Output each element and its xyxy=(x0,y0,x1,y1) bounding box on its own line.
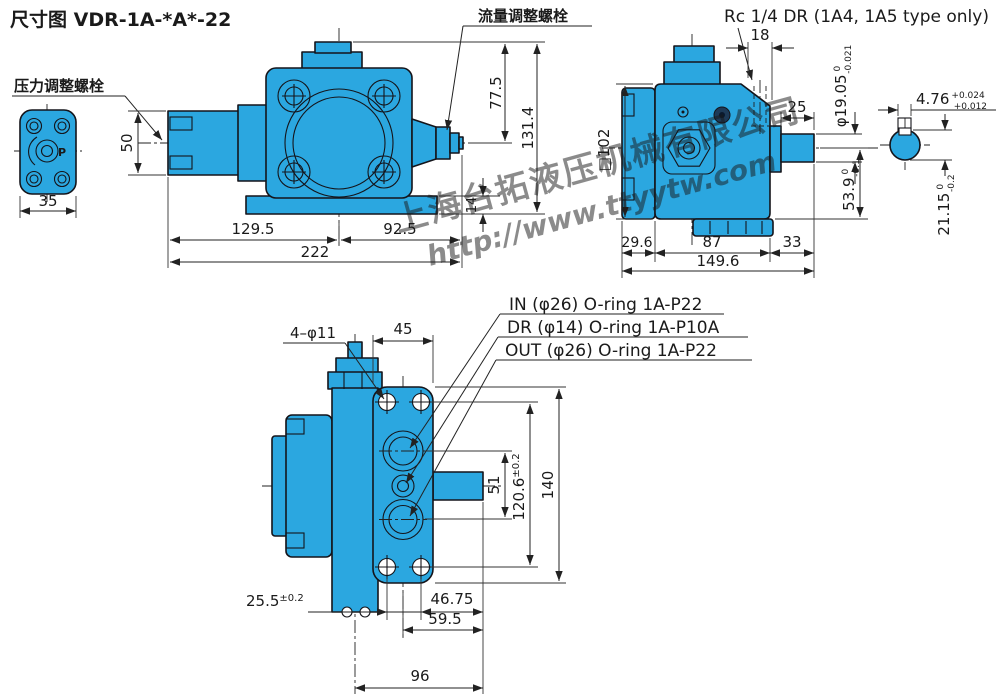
dim-side-bottom-main: 53.9 xyxy=(840,177,858,210)
dim-bolt-span: 120.6±0.2 xyxy=(510,453,528,520)
dim-key-width: 4.76+0.024+0.012 xyxy=(916,90,987,112)
dim-bolt-holes: 4–φ11 xyxy=(290,324,336,342)
port-out-label: OUT (φ26) O-ring 1A-P22 xyxy=(505,341,717,361)
dim-front-left: 129.5 xyxy=(232,220,275,238)
dim-key-width-tol-top: +0.024 xyxy=(951,91,985,101)
port-dr-label: DR (φ14) O-ring 1A-P10A xyxy=(507,318,720,338)
dim-flange-width: 35 xyxy=(38,192,57,210)
dim-mount-right: 46.75 xyxy=(431,590,474,608)
bottom-view: IN (φ26) O-ring 1A-P22 DR (φ14) O-ring 1… xyxy=(246,295,752,694)
shaft-section-view: 4.76+0.024+0.012 21.150-0.2 xyxy=(878,90,996,236)
dim-shaft-dia-main: φ19.05 xyxy=(832,74,850,127)
dim-front-top: 77.5 xyxy=(487,76,505,109)
dim-port-span: 51 xyxy=(485,475,503,494)
pressure-adjust-label: 压力调整螺栓 xyxy=(14,77,104,95)
dim-bolt-pitch: 25.5±0.2 xyxy=(246,592,304,610)
dim-mount-total: 96 xyxy=(410,667,429,685)
dim-key-width-main: 4.76 xyxy=(916,90,949,108)
dim-side-bottom: 53.90-0.1 xyxy=(840,159,862,211)
dimension-drawing-page: 尺寸图 VDR-1A-*A*-22 流量调整螺栓 Rc 1/4 DR (1A4,… xyxy=(0,0,1000,697)
dim-side-top-offset: 18 xyxy=(750,26,769,44)
dim-side-bottom-tol-bot: -0.1 xyxy=(852,159,862,177)
dim-side-left: 29.6 xyxy=(621,235,652,251)
dim-side-mid: 87 xyxy=(702,233,721,251)
dim-bolt-pitch-main: 25.5 xyxy=(246,592,279,610)
port-flange-view: P 35 xyxy=(14,104,82,218)
dim-mount-port: 59.5 xyxy=(428,610,461,628)
dim-bolt-span-main: 120.6 xyxy=(510,478,528,521)
dim-side-total: 149.6 xyxy=(697,252,740,270)
dim-shaft-dia: φ19.050-0.021 xyxy=(832,45,854,128)
dim-key-height-tol-top: 0 xyxy=(936,184,946,190)
dim-front-height: 131.4 xyxy=(519,107,537,150)
rc-port-label: Rc 1/4 DR (1A4, 1A5 type only) xyxy=(724,7,989,27)
dim-flange-height: 140 xyxy=(539,471,557,500)
dim-bolt-span-tol: ±0.2 xyxy=(511,453,522,477)
dim-front-total: 222 xyxy=(301,243,330,261)
dim-shaft-dia-tol-top: 0 xyxy=(833,65,843,71)
page-title: 尺寸图 VDR-1A-*A*-22 xyxy=(10,8,231,31)
dim-key-height-tol-bot: -0.2 xyxy=(947,174,957,192)
dim-bolt-pitch-tol: ±0.2 xyxy=(279,593,303,604)
dim-shaft-dia-tol-bot: -0.021 xyxy=(844,45,854,74)
dim-key-width-tol-bot: +0.012 xyxy=(954,102,987,112)
watermark: 上海台拓液压机械有限公司 http://www.ttyytw.com xyxy=(390,90,805,273)
dimension-drawing: 尺寸图 VDR-1A-*A*-22 流量调整螺栓 Rc 1/4 DR (1A4,… xyxy=(0,0,1000,697)
dim-key-height: 21.150-0.2 xyxy=(935,174,957,235)
flow-adjust-label: 流量调整螺栓 xyxy=(478,7,568,25)
dim-side-bottom-tol-top: 0 xyxy=(841,168,851,174)
dim-flange-face: 45 xyxy=(393,320,412,338)
dim-front-end-height: 50 xyxy=(118,133,136,152)
port-p-label: P xyxy=(58,146,66,159)
dim-side-shaft: 33 xyxy=(782,233,801,251)
port-in-label: IN (φ26) O-ring 1A-P22 xyxy=(509,295,702,315)
dim-key-height-main: 21.15 xyxy=(935,193,953,236)
